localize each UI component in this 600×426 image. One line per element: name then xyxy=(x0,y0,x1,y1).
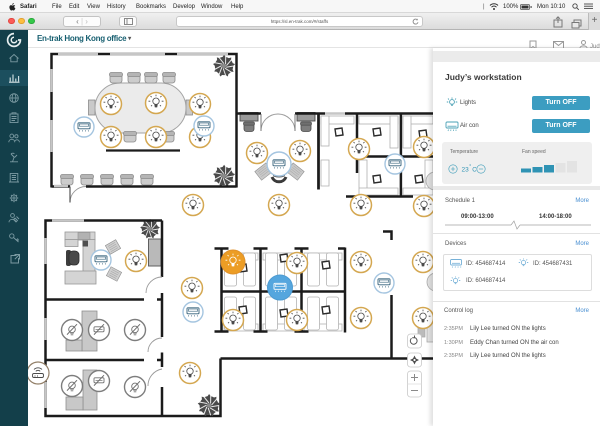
svg-text:C: C xyxy=(472,167,477,173)
svg-text:23: 23 xyxy=(462,166,470,173)
svg-text:°: ° xyxy=(469,164,471,170)
